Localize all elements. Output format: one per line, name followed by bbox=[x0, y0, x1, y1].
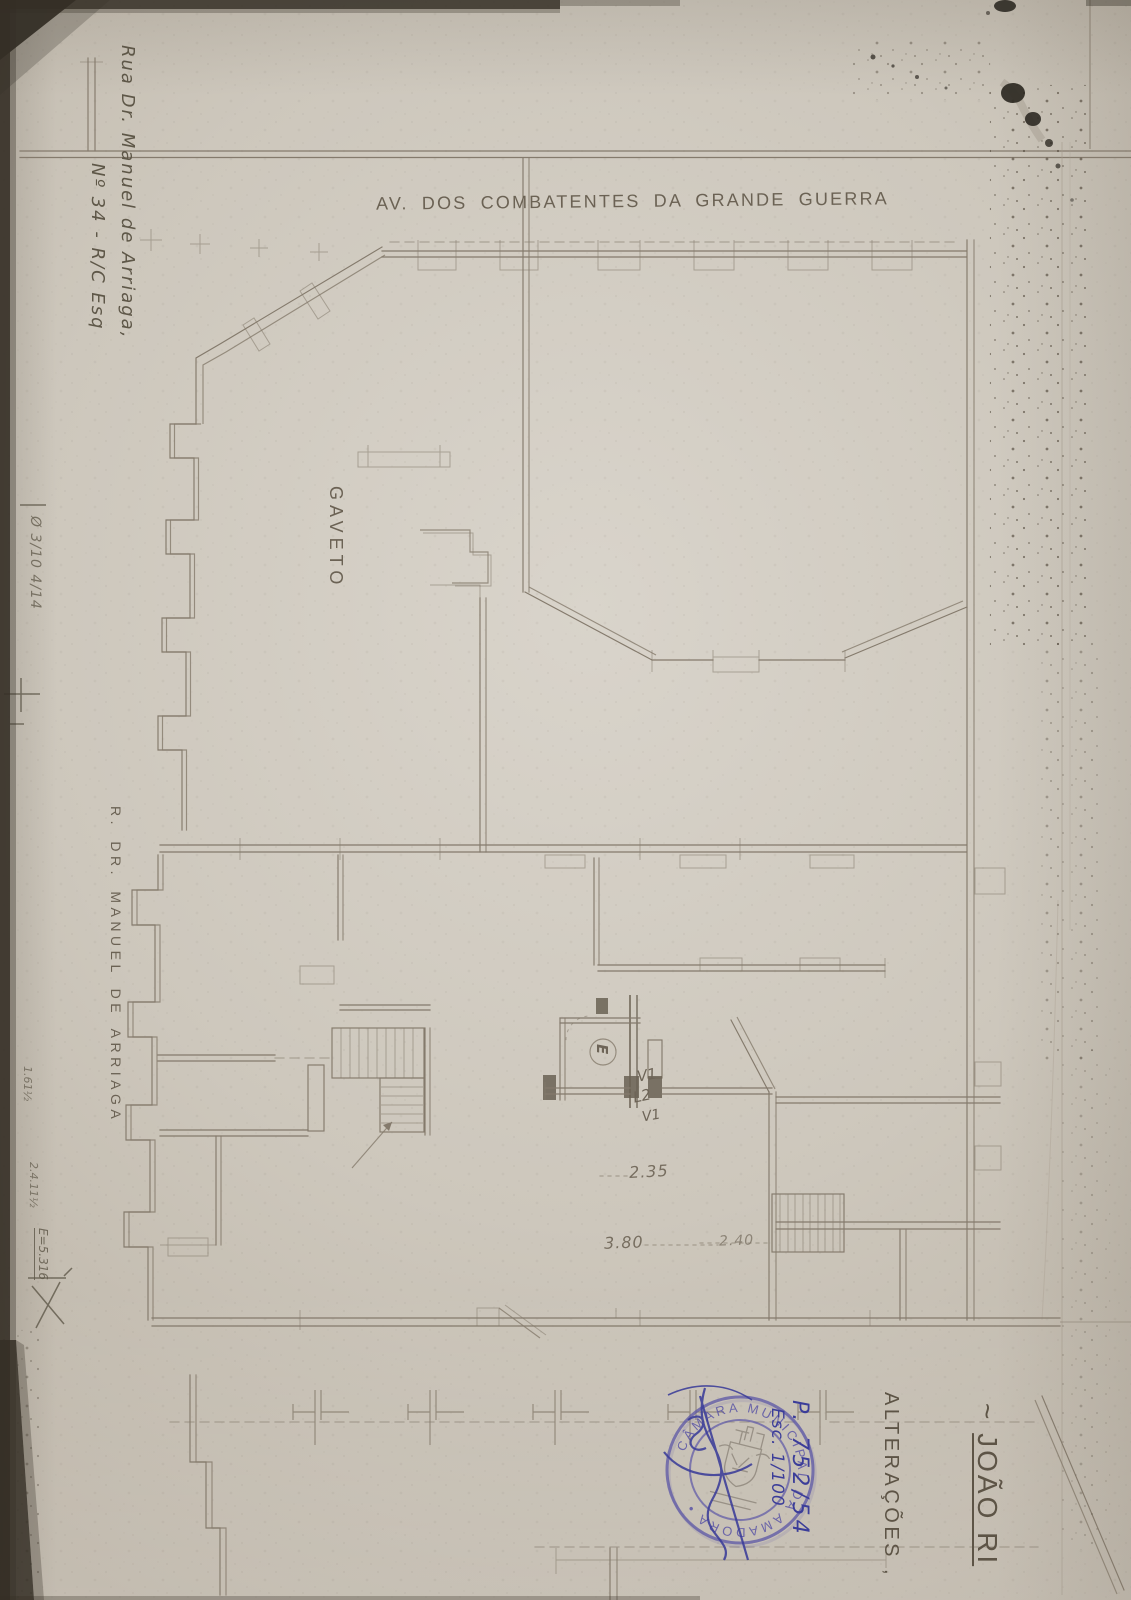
dimension-hall: 2.35 bbox=[629, 1161, 670, 1182]
alterations-note: ALTERAÇÕES , bbox=[879, 1392, 902, 1578]
dimension-steps: 2.40 bbox=[719, 1232, 755, 1249]
margin-note-top: Ø 3/10 4/14 bbox=[27, 516, 43, 610]
address-note-line2: Nº 34 - R/C Esq bbox=[82, 45, 112, 339]
label-v1-bottom: V1 bbox=[641, 1107, 662, 1126]
dimension-front: 3.80 bbox=[604, 1232, 644, 1252]
label-v1-top: V1 bbox=[636, 1064, 659, 1085]
label-entry: E bbox=[593, 1044, 611, 1054]
scanned-plan-document: CÂMARA MUNICIPAL DA AMADORA • bbox=[0, 0, 1131, 1600]
owner-note: ~ JOÃO RI bbox=[971, 1403, 1003, 1566]
scale-note: Esc. 1/100 bbox=[767, 1408, 787, 1507]
paper-grain bbox=[0, 0, 1131, 1600]
margin-note-c: E=5.316 bbox=[36, 1228, 50, 1280]
floor-plan-drawing: CÂMARA MUNICIPAL DA AMADORA • bbox=[0, 0, 1131, 1600]
process-number-note: P. 752/54 bbox=[787, 1400, 812, 1538]
address-note-line1: Rua Dr. Manuel de Arriaga, bbox=[112, 45, 142, 339]
label-l2: L2 bbox=[631, 1085, 652, 1106]
margin-note-b: 2.4.11½ bbox=[27, 1162, 40, 1208]
owner-note-name: JOÃO RI bbox=[972, 1433, 1003, 1566]
corner-label: GAVETO bbox=[325, 486, 346, 589]
margin-note-a: 1.61½ bbox=[21, 1066, 34, 1101]
address-note: Rua Dr. Manuel de Arriaga, Nº 34 - R/C E… bbox=[82, 45, 142, 339]
owner-note-prefix: ~ bbox=[972, 1403, 1003, 1422]
street-label: R. DR. MANUEL DE ARRIAGA bbox=[108, 806, 124, 1123]
